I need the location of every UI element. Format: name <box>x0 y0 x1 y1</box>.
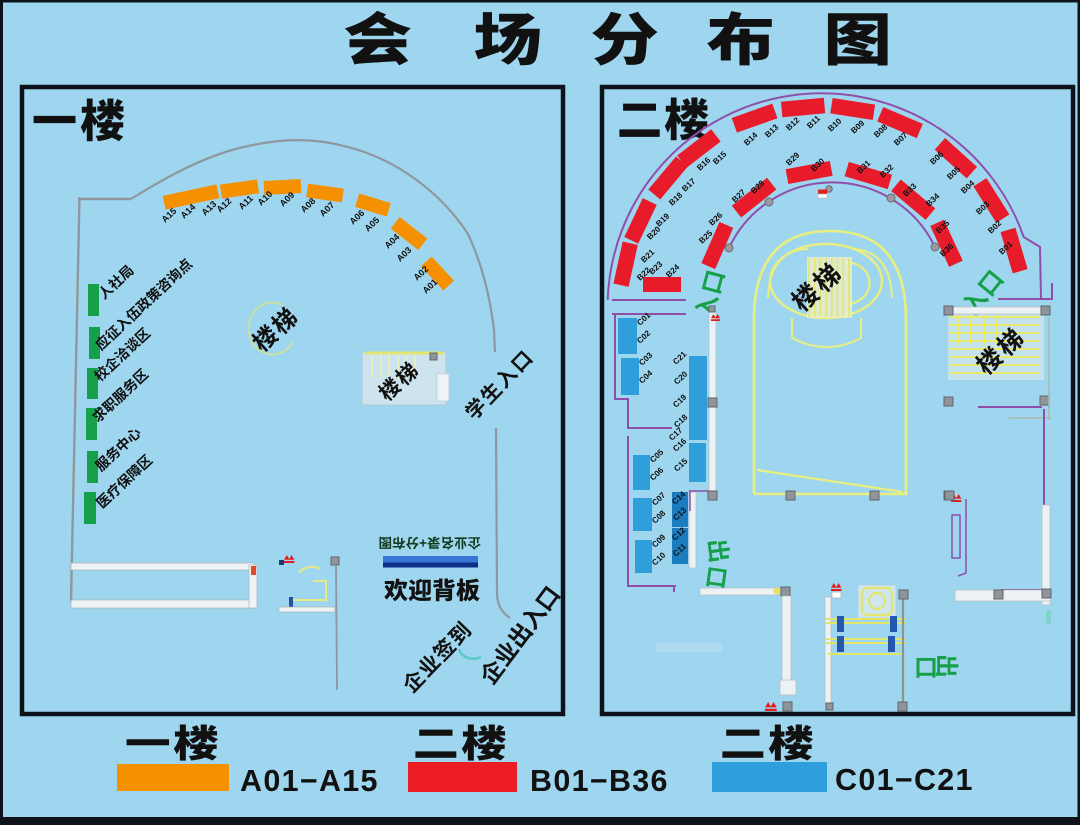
svg-text:A01−A15: A01−A15 <box>240 764 379 798</box>
svg-text:C01−C21: C01−C21 <box>835 763 974 797</box>
svg-text:B01−B36: B01−B36 <box>530 764 669 798</box>
